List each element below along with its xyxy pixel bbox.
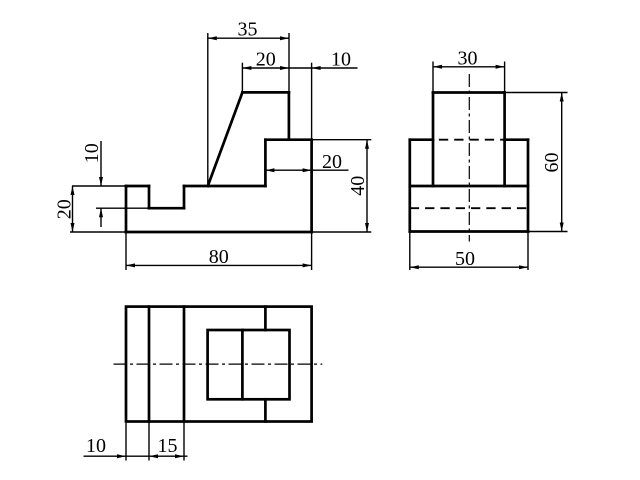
svg-text:40: 40: [347, 176, 369, 196]
svg-text:80: 80: [209, 246, 229, 268]
svg-text:10: 10: [81, 143, 103, 163]
svg-text:20: 20: [53, 199, 75, 219]
svg-text:60: 60: [541, 153, 563, 173]
svg-text:10: 10: [331, 48, 351, 70]
svg-text:35: 35: [238, 19, 258, 41]
svg-text:10: 10: [86, 435, 106, 457]
svg-text:20: 20: [322, 151, 342, 173]
svg-text:50: 50: [455, 248, 475, 270]
svg-text:30: 30: [458, 48, 478, 70]
svg-text:15: 15: [158, 435, 178, 457]
svg-text:20: 20: [256, 48, 276, 70]
